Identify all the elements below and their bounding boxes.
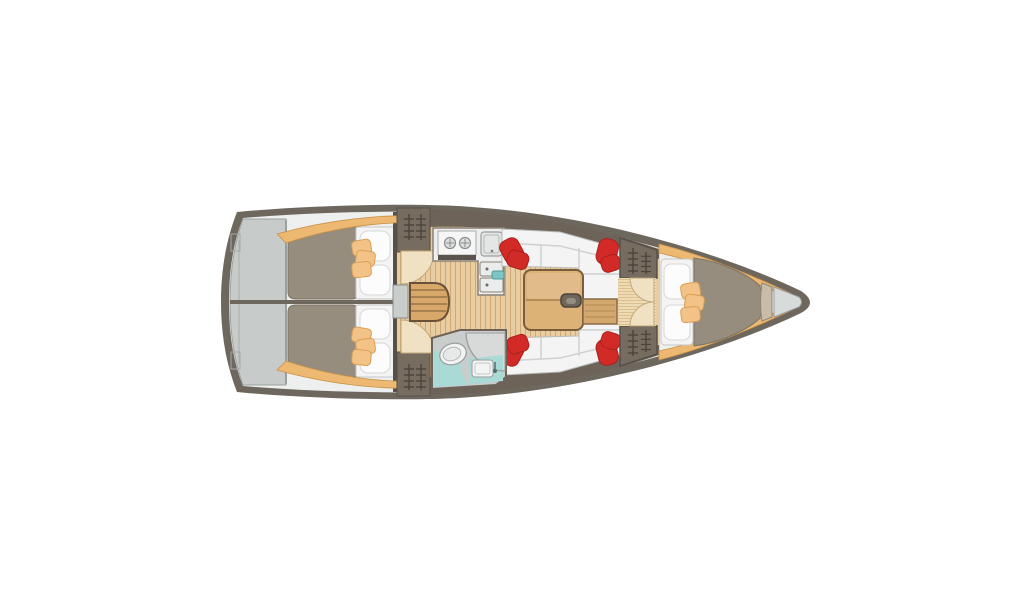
table-extension-leaf xyxy=(583,299,617,324)
galley-faucet xyxy=(492,271,504,279)
yacht-layout-diagram xyxy=(0,0,1024,600)
companionway-landing xyxy=(393,285,408,318)
companionway-steps xyxy=(410,283,449,321)
bow-shelf-strip xyxy=(761,283,773,321)
galley-basin-2-drain xyxy=(486,284,489,287)
forward-cabin xyxy=(659,244,802,360)
oven-front-strip xyxy=(438,255,476,260)
boat-floorplan-canvas xyxy=(0,0,1024,600)
hanging-locker-bottom xyxy=(397,352,430,396)
galley-basin-1-drain xyxy=(486,268,489,271)
head-faucet-dot xyxy=(493,369,497,373)
aft-cabin-center-bulkhead xyxy=(230,300,393,304)
head-compartment xyxy=(432,330,506,389)
table-handle-grip xyxy=(566,298,576,304)
galley-sink-drain xyxy=(491,250,494,253)
galley-basin-2 xyxy=(480,278,503,292)
hanging-locker-top xyxy=(397,208,430,252)
companionway-steps-body xyxy=(410,283,449,321)
